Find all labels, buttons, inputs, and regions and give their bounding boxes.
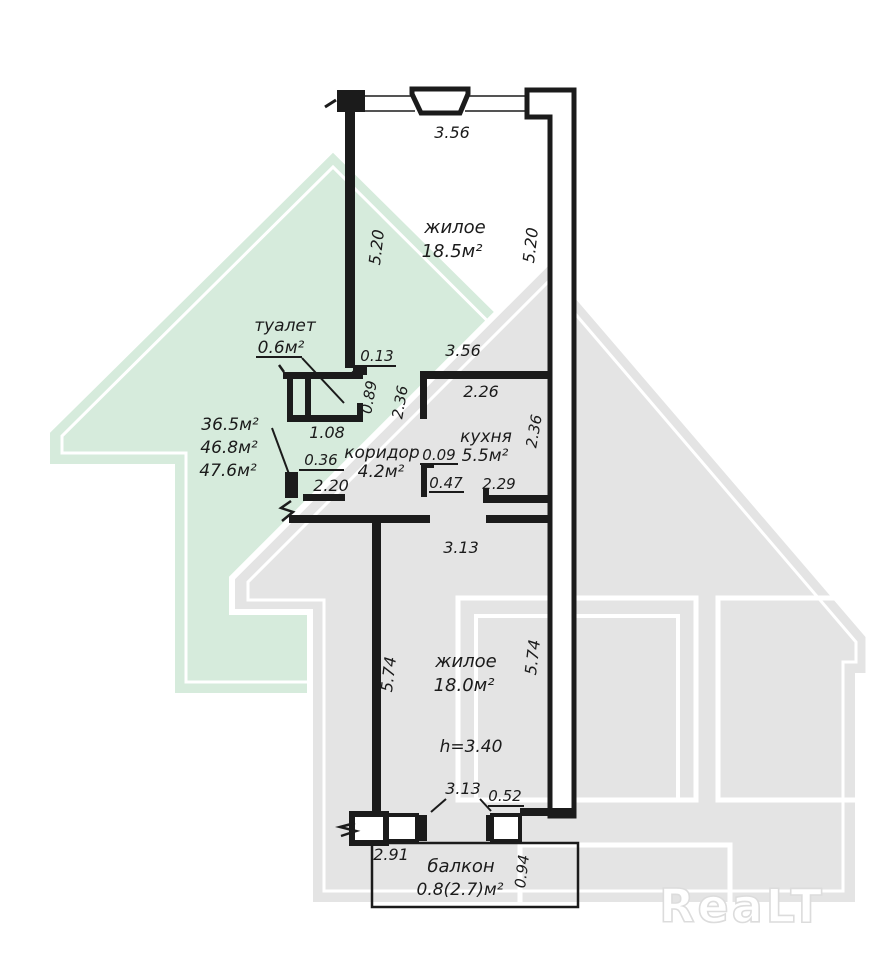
wall-corridor-south xyxy=(289,515,381,523)
wall-lower-room-top-right xyxy=(486,515,550,523)
room-kitchen-area: 5.5м² xyxy=(462,446,509,466)
balcony-door-jamb-left xyxy=(417,815,427,841)
dim-kitchen-bottom: 2.29 xyxy=(482,475,515,493)
room-balcony-area: 0.8(2.7)м² xyxy=(417,880,504,900)
dim-balcony-left: 2.91 xyxy=(373,845,409,864)
dim-stub-009: 0.09 xyxy=(422,446,455,464)
wall-entry-stub xyxy=(285,472,298,498)
window-bottom-right xyxy=(492,815,520,841)
window-bottom-left xyxy=(387,815,417,841)
dim-entry-stub: 0.36 xyxy=(304,451,337,469)
room-living-bottom-name: жилое xyxy=(434,651,497,672)
wall-bottom-right-connector xyxy=(520,808,574,816)
dim-entry-width: 2.20 xyxy=(313,476,349,495)
wall-toilet-bottom xyxy=(287,415,363,422)
total-area: 46.8м² xyxy=(200,438,258,458)
total-area-with-balcony: 47.6м² xyxy=(199,461,257,481)
dim-balcony-span: 3.13 xyxy=(445,779,481,798)
dim-wall-step: 0.13 xyxy=(360,347,393,365)
realt-logo-watermark: ReaLT xyxy=(659,879,825,933)
room-balcony-name: балкон xyxy=(427,856,495,877)
wall-left-upper-room xyxy=(345,112,355,368)
dim-stub-052: 0.52 xyxy=(488,787,521,805)
wall-kitchen-left-upper xyxy=(420,371,427,419)
dim-span-mid: 3.56 xyxy=(445,341,481,360)
room-kitchen-name: кухня xyxy=(460,427,512,447)
wall-toilet-partition xyxy=(305,379,311,421)
wall-toilet-top xyxy=(283,372,363,379)
dim-kitchen-top: 2.26 xyxy=(463,382,499,401)
window-top-center xyxy=(412,89,468,113)
room-toilet-name: туалет xyxy=(254,316,317,336)
wall-toilet-left xyxy=(287,379,293,421)
room-corridor-name: коридор xyxy=(344,443,420,463)
total-living-area: 36.5м² xyxy=(201,415,259,435)
wall-entry-lower xyxy=(303,494,345,501)
wall-kitchen-stub xyxy=(421,463,427,497)
dim-stub-047: 0.47 xyxy=(429,474,463,492)
dim-room2-top: 3.13 xyxy=(443,538,479,557)
room-living-bottom-area: 18.0м² xyxy=(434,675,495,696)
room-corridor-area: 4.2м² xyxy=(358,462,405,482)
room-living-top-area: 18.5м² xyxy=(422,241,483,262)
room-living-top-name: жилое xyxy=(423,217,486,238)
wall-corner-block-bottom-left xyxy=(352,814,386,843)
wall-kitchen-top xyxy=(420,371,552,379)
dim-toilet-width: 1.08 xyxy=(309,423,345,442)
floor-plan-page: 3.56 5.20 5.20 жилое 18.5м² туалет 0.6м²… xyxy=(0,0,874,974)
wall-kitchen-bottom xyxy=(483,495,550,503)
floor-plan-drawing: 3.56 5.20 5.20 жилое 18.5м² туалет 0.6м²… xyxy=(0,0,874,974)
ceiling-height-note: h=3.40 xyxy=(440,737,503,757)
room-toilet-area: 0.6м² xyxy=(258,338,305,358)
dim-window-top: 3.56 xyxy=(434,123,470,142)
wall-pillar-top-left xyxy=(337,90,365,112)
wall-lower-room-top-left xyxy=(372,515,430,523)
